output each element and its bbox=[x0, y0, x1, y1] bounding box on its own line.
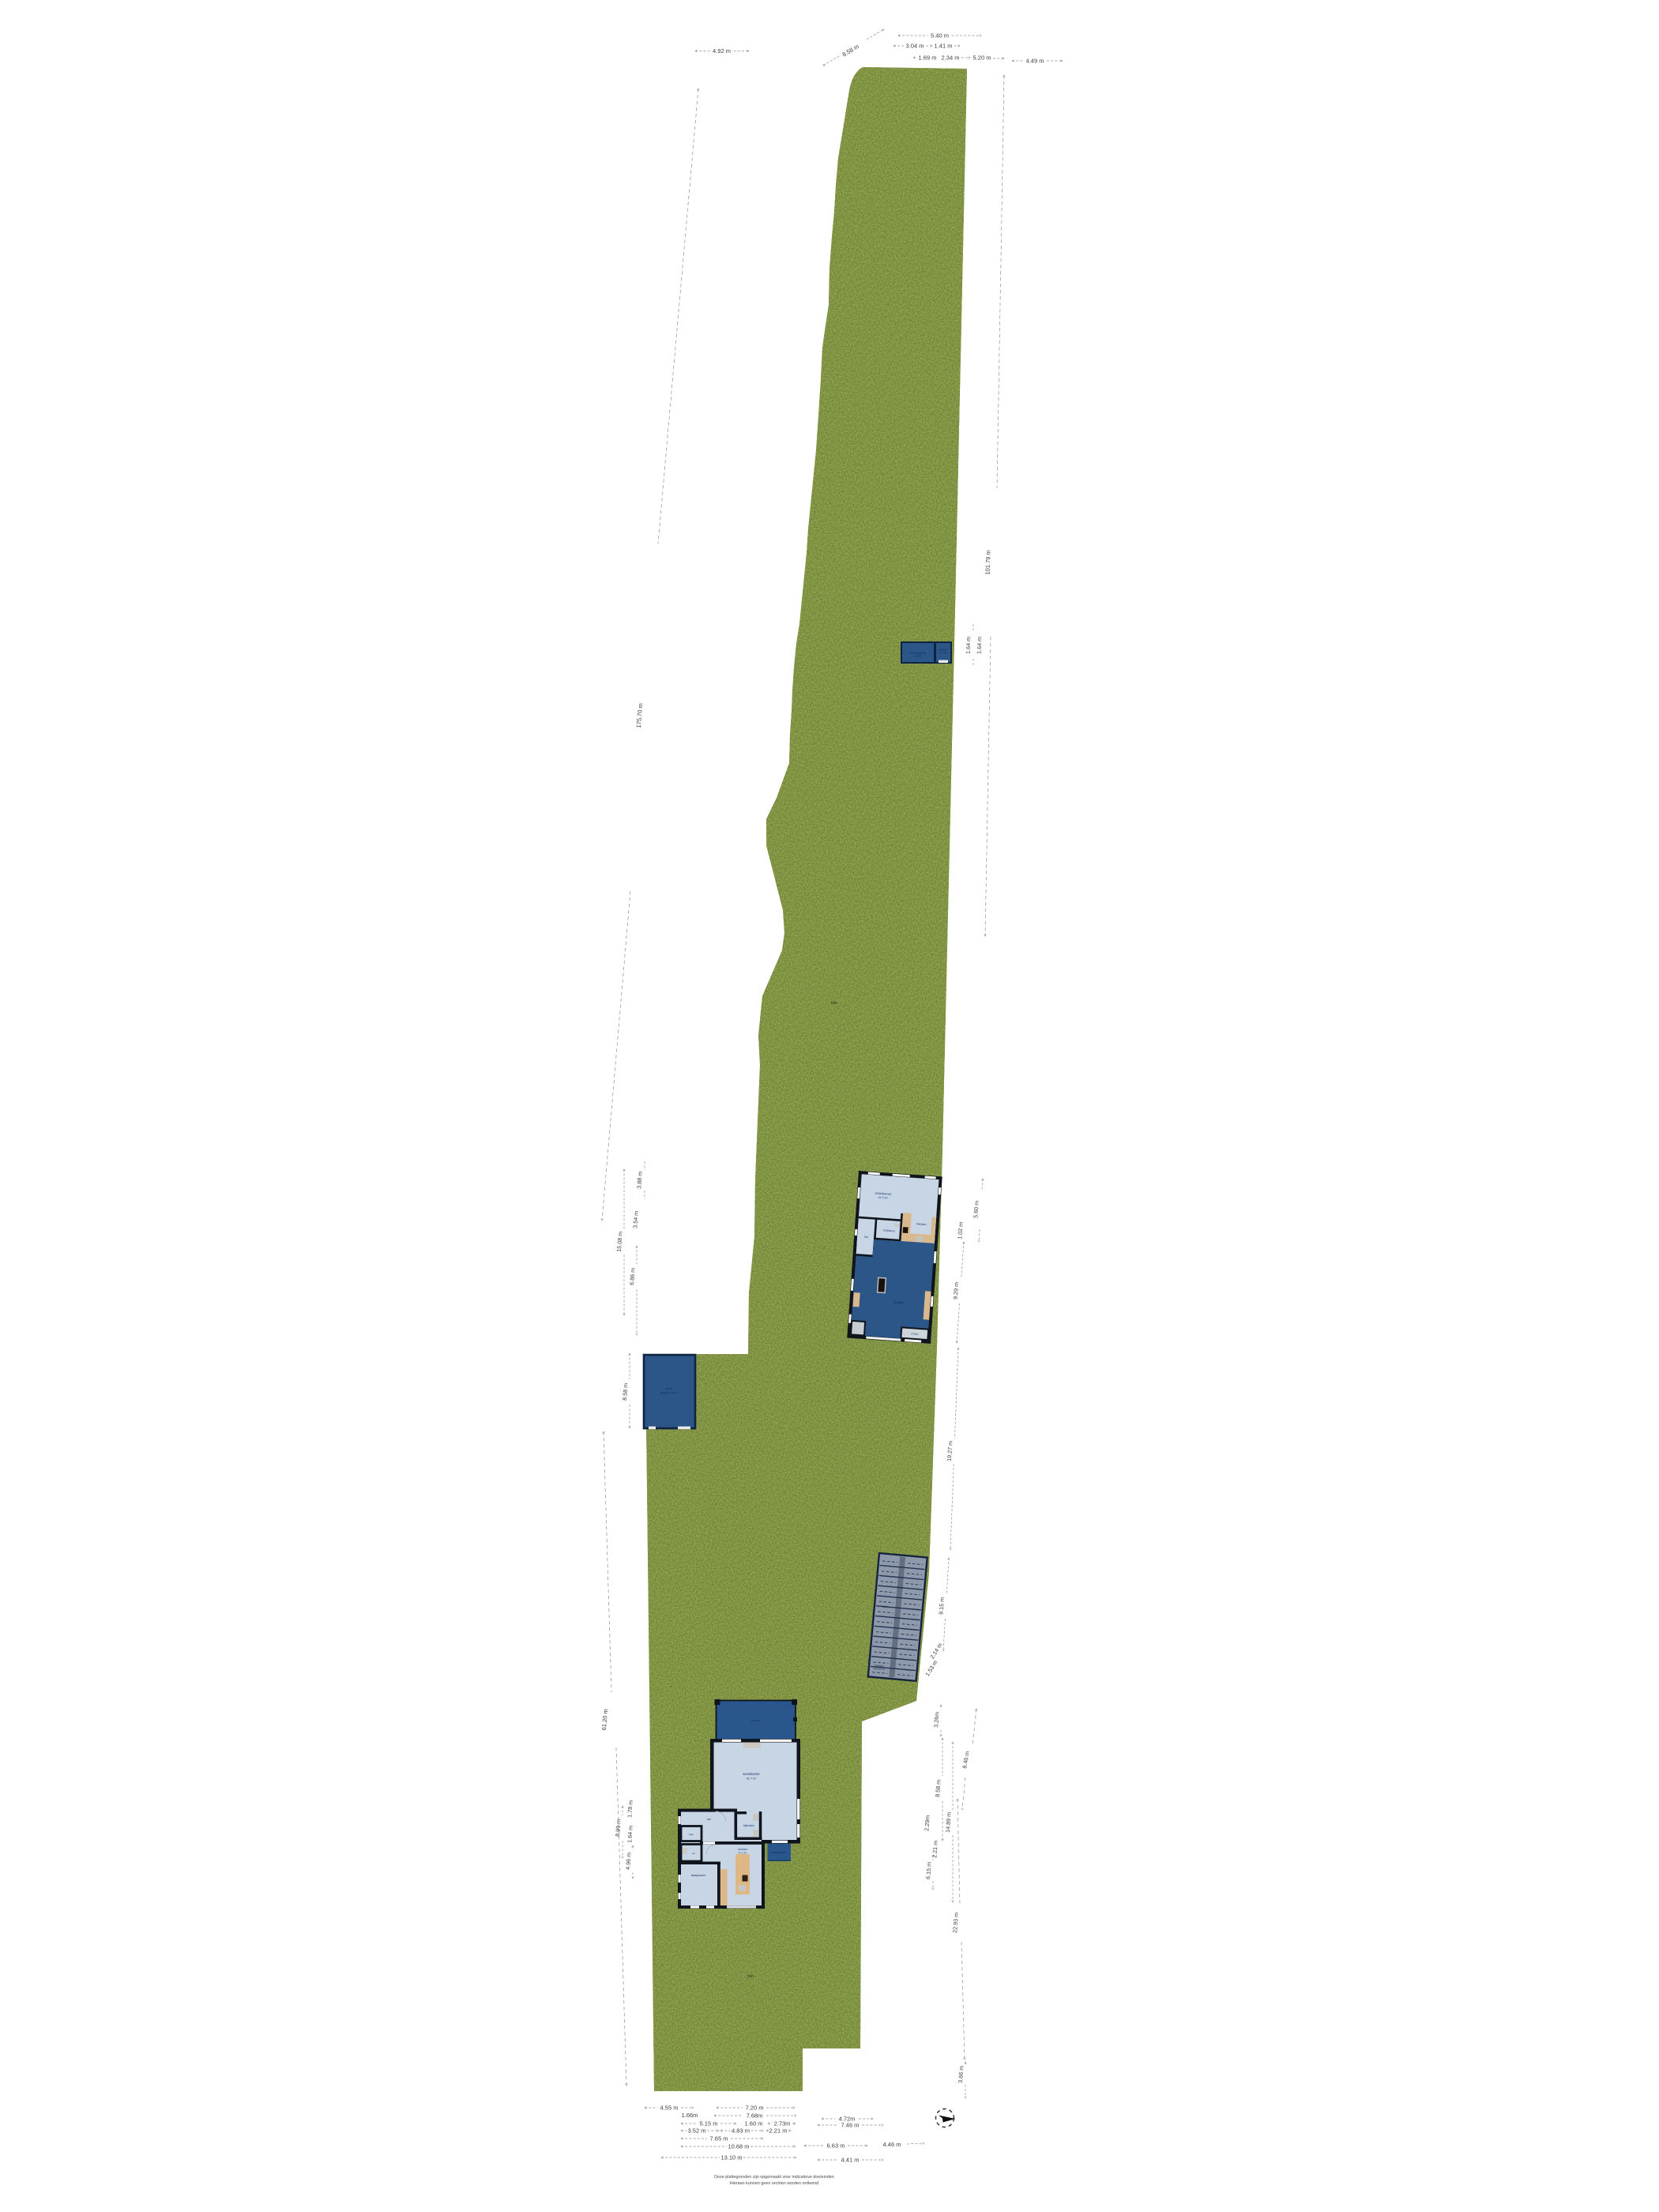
svg-text:1.66m: 1.66m bbox=[682, 2112, 698, 2119]
svg-text:1.64 m: 1.64 m bbox=[976, 637, 984, 654]
svg-text:5.15 m: 5.15 m bbox=[700, 2120, 718, 2127]
svg-text:3.54 m: 3.54 m bbox=[631, 1211, 640, 1229]
svg-text:keuken: keuken bbox=[916, 1222, 926, 1226]
svg-text:10.68 m: 10.68 m bbox=[728, 2143, 749, 2150]
svg-text:hal: hal bbox=[864, 1236, 868, 1239]
svg-text:4.46 m: 4.46 m bbox=[883, 2141, 901, 2148]
svg-text:7.20 m: 7.20 m bbox=[746, 2105, 764, 2112]
svg-text:3.04 m: 3.04 m bbox=[906, 43, 924, 50]
svg-text:hal: hal bbox=[707, 1818, 711, 1821]
svg-text:1.60 m: 1.60 m bbox=[745, 2120, 763, 2127]
svg-text:terras: terras bbox=[751, 1718, 759, 1722]
svg-text:7.68m: 7.68m bbox=[747, 2112, 763, 2120]
svg-text:4.83 m: 4.83 m bbox=[732, 2127, 750, 2135]
svg-text:5.60 m: 5.60 m bbox=[972, 1201, 980, 1219]
svg-text:3.66 m: 3.66 m bbox=[957, 2066, 965, 2084]
svg-text:2.29m: 2.29m bbox=[923, 1815, 931, 1832]
svg-text:bijkeuken: bijkeuken bbox=[743, 1824, 754, 1827]
svg-text:wc: wc bbox=[692, 1852, 695, 1855]
svg-text:4.41 m: 4.41 m bbox=[841, 2157, 860, 2164]
svg-text:garage: garage bbox=[893, 1300, 905, 1305]
svg-text:17.1 m²: 17.1 m² bbox=[739, 1852, 747, 1855]
svg-text:woonkamer: woonkamer bbox=[743, 1772, 760, 1776]
svg-text:5.20 m: 5.20 m bbox=[973, 55, 991, 62]
svg-text:11.9 m²: 11.9 m² bbox=[914, 655, 923, 658]
svg-text:6.15 m: 6.15 m bbox=[924, 1862, 933, 1880]
svg-text:4.92 m: 4.92 m bbox=[713, 47, 731, 55]
svg-text:2.21 m: 2.21 m bbox=[931, 1841, 939, 1859]
svg-text:3.52 m: 3.52 m bbox=[688, 2127, 706, 2135]
svg-text:14.89 m: 14.89 m bbox=[944, 1812, 953, 1834]
svg-text:loods: loods bbox=[666, 1387, 673, 1390]
svg-text:7.65 m: 7.65 m bbox=[710, 2135, 728, 2142]
svg-text:3.88 m: 3.88 m bbox=[635, 1172, 644, 1190]
svg-text:achterentree: achterentree bbox=[772, 1851, 787, 1854]
svg-text:41.7 m²: 41.7 m² bbox=[747, 1777, 758, 1781]
svg-text:entree: entree bbox=[911, 1332, 919, 1336]
svg-text:1.02 m: 1.02 m bbox=[956, 1222, 965, 1240]
svg-text:5.40 m: 5.40 m bbox=[931, 32, 949, 39]
svg-text:opslag 51.8 m²: opslag 51.8 m² bbox=[660, 1391, 679, 1394]
svg-text:8.58 m: 8.58 m bbox=[934, 1780, 942, 1798]
svg-text:2.21 m: 2.21 m bbox=[769, 2127, 788, 2135]
svg-text:15.08 m: 15.08 m bbox=[615, 1232, 624, 1253]
svg-text:4.49 m: 4.49 m bbox=[1026, 58, 1044, 65]
svg-text:4.1 m²: 4.1 m² bbox=[939, 652, 946, 655]
svg-text:tuin: tuin bbox=[831, 1001, 837, 1006]
svg-text:kast: kast bbox=[689, 1833, 694, 1836]
svg-text:6.86 m: 6.86 m bbox=[628, 1268, 637, 1286]
svg-text:1.64 m: 1.64 m bbox=[965, 637, 972, 654]
svg-text:6.63 m: 6.63 m bbox=[827, 2142, 845, 2150]
svg-text:9.15 m: 9.15 m bbox=[937, 1597, 946, 1616]
svg-text:1.69 m: 1.69 m bbox=[919, 55, 937, 62]
svg-text:tuin: tuin bbox=[747, 1974, 754, 1979]
svg-text:1.78 m: 1.78 m bbox=[626, 1800, 634, 1819]
svg-text:2.34 m: 2.34 m bbox=[942, 55, 960, 62]
svg-text:22.93 m: 22.93 m bbox=[951, 1913, 960, 1934]
svg-text:Hieraan kunnen geen rechten wo: Hieraan kunnen geen rechten worden ontle… bbox=[730, 2181, 818, 2186]
svg-text:13.10 m: 13.10 m bbox=[720, 2154, 742, 2161]
svg-text:9.29 m: 9.29 m bbox=[952, 1282, 961, 1300]
svg-text:4.96 m: 4.96 m bbox=[624, 1853, 633, 1871]
svg-text:101.79 m: 101.79 m bbox=[984, 550, 991, 575]
svg-text:1.41 m: 1.41 m bbox=[935, 43, 953, 50]
svg-text:8.99 m: 8.99 m bbox=[614, 1819, 623, 1838]
svg-text:19.27 m: 19.27 m bbox=[946, 1441, 954, 1462]
svg-text:8.58 m: 8.58 m bbox=[621, 1383, 630, 1401]
svg-text:slaapkamer: slaapkamer bbox=[691, 1874, 706, 1877]
svg-text:keuken: keuken bbox=[738, 1848, 747, 1851]
svg-text:Deze plattegronden zijn opgema: Deze plattegronden zijn opgemaakt voor i… bbox=[714, 2175, 834, 2180]
svg-text:4.55 m: 4.55 m bbox=[660, 2105, 679, 2112]
svg-text:1.64 m: 1.64 m bbox=[626, 1826, 634, 1844]
svg-text:7.46 m: 7.46 m bbox=[841, 2122, 860, 2129]
svg-text:2.73m: 2.73m bbox=[774, 2120, 791, 2127]
svg-text:3.26m: 3.26m bbox=[932, 1712, 940, 1729]
